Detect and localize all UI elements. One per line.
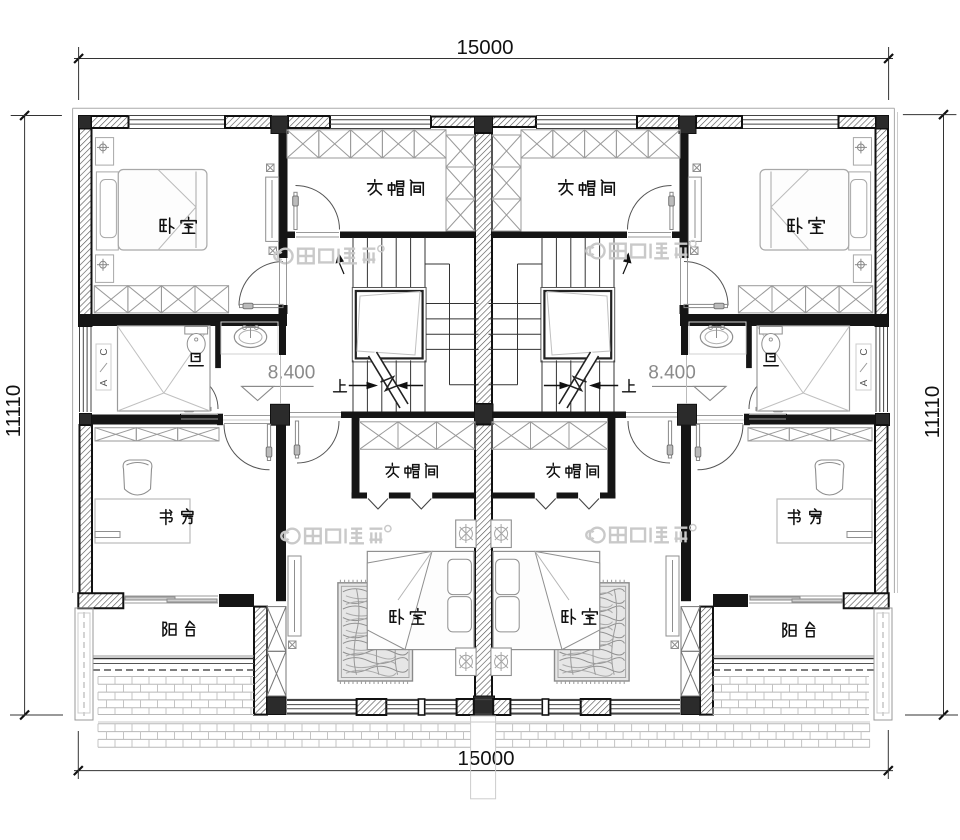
svg-text:11110: 11110 xyxy=(2,385,25,437)
svg-text:A: A xyxy=(99,379,110,386)
svg-text:8.400: 8.400 xyxy=(648,363,696,384)
svg-text:15000: 15000 xyxy=(456,36,513,59)
svg-text:A: A xyxy=(859,379,870,386)
svg-text:11110: 11110 xyxy=(921,386,944,438)
svg-text:C: C xyxy=(859,348,870,355)
svg-text:15000: 15000 xyxy=(457,747,514,770)
svg-text:8.400: 8.400 xyxy=(268,363,316,384)
svg-text:C: C xyxy=(99,348,110,355)
